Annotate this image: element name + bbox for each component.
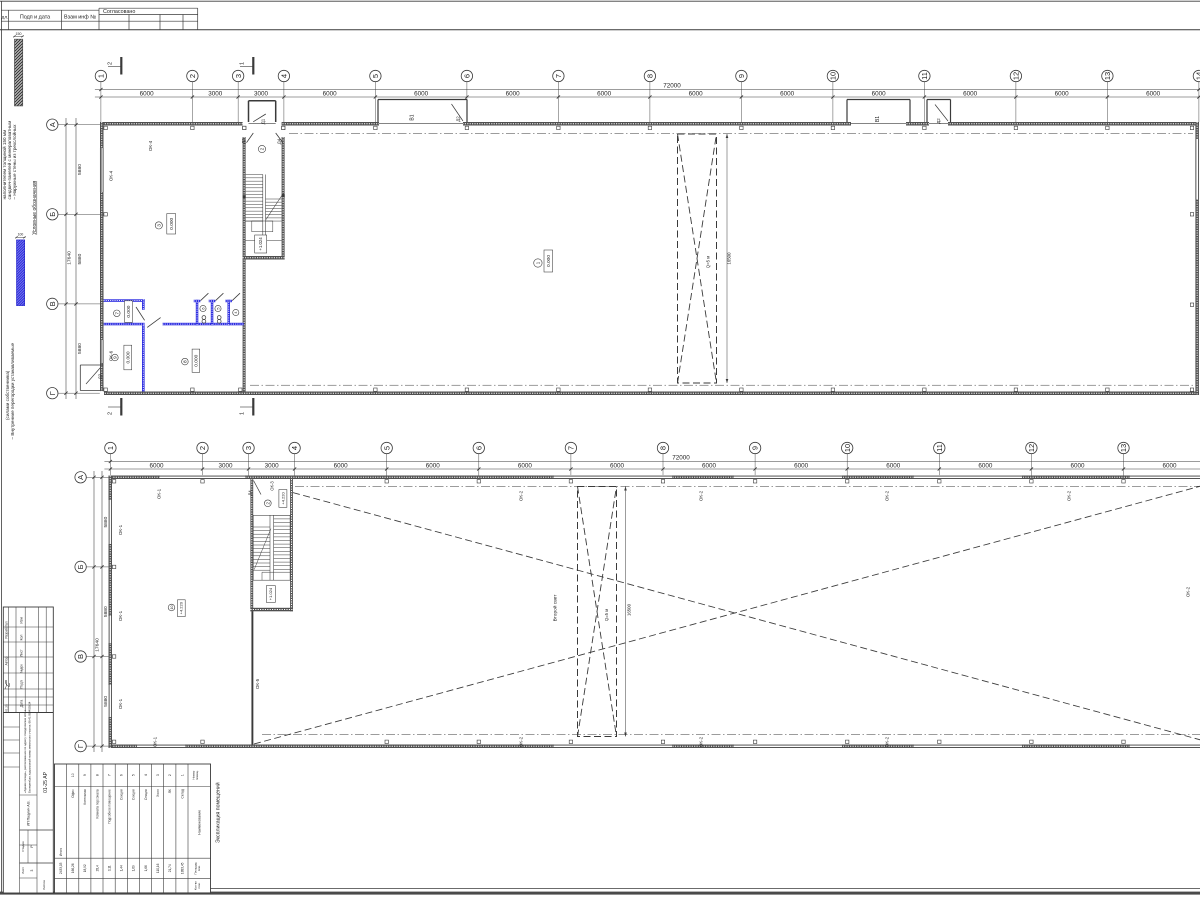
svg-text:сандвич-панелей с минераловатн: сандвич-панелей с минераловатным <box>6 121 12 200</box>
svg-text:№док: №док <box>19 664 23 673</box>
svg-text:10: 10 <box>170 606 174 610</box>
svg-text:4: 4 <box>234 311 238 313</box>
svg-text:6000: 6000 <box>1055 90 1070 97</box>
svg-text:6000: 6000 <box>702 462 717 469</box>
svg-text:ОК-4: ОК-4 <box>148 140 153 151</box>
svg-text:Листов: Листов <box>42 880 46 890</box>
svg-text:10: 10 <box>71 773 75 777</box>
svg-text:Экспликация помещений: Экспликация помещений <box>215 782 222 843</box>
svg-text:6000: 6000 <box>1070 462 1085 469</box>
svg-text:ОК-2: ОК-2 <box>519 490 524 501</box>
svg-text:12: 12 <box>1012 72 1021 80</box>
svg-text:Д3: Д3 <box>241 138 246 144</box>
svg-text:Автор: Автор <box>5 656 9 665</box>
svg-text:8: 8 <box>646 74 655 78</box>
svg-text:наполнителем толщиной 150 мм: наполнителем толщиной 150 мм <box>1 130 7 200</box>
svg-text:ОК-1: ОК-1 <box>118 524 123 535</box>
svg-text:16500: 16500 <box>727 252 732 265</box>
svg-text:Согласовано: Согласовано <box>103 9 135 15</box>
svg-text:9: 9 <box>83 774 87 776</box>
svg-text:Стадия: Стадия <box>21 841 25 852</box>
svg-text:0.000: 0.000 <box>169 217 175 229</box>
svg-text:9: 9 <box>751 446 760 450</box>
svg-text:6000: 6000 <box>414 90 429 97</box>
svg-text:01.25: 01.25 <box>5 704 9 712</box>
svg-text:3000: 3000 <box>219 462 234 469</box>
svg-text:Q=5 м: Q=5 м <box>706 256 711 268</box>
svg-text:6000: 6000 <box>426 462 441 469</box>
svg-text:ОК-2: ОК-2 <box>1186 586 1191 597</box>
svg-text:100: 100 <box>18 232 24 236</box>
svg-text:4: 4 <box>290 446 299 450</box>
svg-text:1: 1 <box>180 774 184 776</box>
svg-text:7: 7 <box>108 774 112 776</box>
svg-text:2: 2 <box>260 147 266 150</box>
svg-text:0.000: 0.000 <box>126 305 132 317</box>
svg-text:5: 5 <box>132 774 136 776</box>
svg-text:13: 13 <box>1103 72 1112 80</box>
svg-text:3: 3 <box>30 869 34 871</box>
svg-text:Секция: Секция <box>132 789 136 800</box>
svg-text:7: 7 <box>554 74 563 78</box>
svg-text:11: 11 <box>920 72 929 80</box>
svg-text:ОК-6: ОК-6 <box>109 350 114 361</box>
svg-text:6000: 6000 <box>886 462 901 469</box>
svg-text:18,92: 18,92 <box>83 864 87 872</box>
svg-text:ОК-2: ОК-2 <box>1067 490 1072 501</box>
svg-text:Комната персонала: Комната персонала <box>95 789 99 818</box>
svg-text:(силами собственника): (силами собственника) <box>5 370 10 420</box>
svg-text:5880: 5880 <box>103 696 109 707</box>
svg-text:3: 3 <box>156 224 162 227</box>
svg-text:0.000: 0.000 <box>194 354 200 366</box>
svg-text:5880: 5880 <box>77 343 83 354</box>
svg-text:ОК-2: ОК-2 <box>885 490 890 501</box>
svg-text:ЛК: ЛК <box>168 789 172 793</box>
svg-text:3000: 3000 <box>208 90 223 97</box>
svg-text:5: 5 <box>382 446 391 450</box>
svg-text:1,66: 1,66 <box>144 865 148 871</box>
svg-text:ОК-3: ОК-3 <box>270 481 275 491</box>
svg-text:6000: 6000 <box>1163 462 1178 469</box>
svg-text:5880: 5880 <box>77 164 83 175</box>
svg-text:6000: 6000 <box>323 90 338 97</box>
svg-text:6000: 6000 <box>1146 90 1161 97</box>
svg-text:Д2: Д2 <box>456 116 461 122</box>
svg-text:2433,03: 2433,03 <box>59 862 63 874</box>
svg-text:Q=5 м: Q=5 м <box>604 609 609 621</box>
svg-text:1: 1 <box>106 446 115 450</box>
svg-text:Г: Г <box>76 744 85 748</box>
svg-text:6000: 6000 <box>794 462 809 469</box>
svg-text:В: В <box>48 301 57 306</box>
svg-text:ОК-2: ОК-2 <box>699 490 704 501</box>
svg-text:5: 5 <box>371 74 380 78</box>
svg-text:Подп и дата: Подп и дата <box>20 15 50 21</box>
svg-text:9: 9 <box>737 74 746 78</box>
svg-text:3: 3 <box>244 446 253 450</box>
svg-text:6000: 6000 <box>597 90 612 97</box>
svg-text:В: В <box>76 654 85 659</box>
svg-text:Секция: Секция <box>144 789 148 800</box>
svg-text:6000: 6000 <box>963 90 978 97</box>
svg-text:пом.: пом. <box>197 865 201 871</box>
svg-text:ОК-5: ОК-5 <box>255 678 260 689</box>
svg-text:2: 2 <box>108 62 114 65</box>
svg-text:Секция: Секция <box>120 789 124 800</box>
svg-text:Б: Б <box>76 564 85 569</box>
svg-text:6: 6 <box>201 307 205 309</box>
svg-text:6000: 6000 <box>689 90 704 97</box>
svg-text:Котельная: Котельная <box>83 789 87 805</box>
svg-text:В1: В1 <box>410 114 416 120</box>
svg-text:3,11: 3,11 <box>108 865 112 871</box>
svg-text:ОК-1: ОК-1 <box>118 698 123 709</box>
svg-text:Кол: Кол <box>19 635 23 641</box>
svg-text:150: 150 <box>16 32 22 36</box>
svg-text:2: 2 <box>108 412 114 415</box>
svg-text:+1.024: +1.024 <box>258 237 263 251</box>
svg-text:10: 10 <box>829 72 838 80</box>
svg-text:помещ.: помещ. <box>195 770 199 780</box>
svg-text:0.000: 0.000 <box>546 255 552 267</box>
svg-text:1,44: 1,44 <box>120 865 124 871</box>
svg-text:5880: 5880 <box>77 253 83 264</box>
svg-text:7: 7 <box>114 312 120 315</box>
svg-text:8: 8 <box>659 446 668 450</box>
svg-text:3: 3 <box>234 74 243 78</box>
svg-text:12: 12 <box>1027 444 1036 452</box>
svg-text:В1: В1 <box>875 116 881 122</box>
svg-text:1,69: 1,69 <box>132 865 136 871</box>
svg-text:6000: 6000 <box>506 90 521 97</box>
svg-text:1: 1 <box>240 62 246 65</box>
svg-text:6000: 6000 <box>334 462 349 469</box>
svg-text:Д2: Д2 <box>936 118 941 124</box>
svg-text:ОК-2: ОК-2 <box>885 736 890 747</box>
svg-text:6000: 6000 <box>872 90 887 97</box>
svg-text:Второй свет: Второй свет <box>552 594 559 622</box>
svg-text:Д4: Д4 <box>247 490 252 496</box>
svg-text:5880: 5880 <box>103 516 109 527</box>
svg-text:Екатеринбург, кадастровый номе: Екатеринбург, кадастровый номер земельно… <box>28 701 32 793</box>
svg-text:14: 14 <box>1195 72 1200 80</box>
svg-text:Разработал: Разработал <box>5 621 9 638</box>
svg-text:6000: 6000 <box>518 462 533 469</box>
svg-text:Д2: Д2 <box>98 373 103 379</box>
svg-text:Лист: Лист <box>19 649 23 657</box>
svg-text:3000: 3000 <box>254 90 269 97</box>
svg-text:Подп: Подп <box>19 680 23 688</box>
svg-text:ОК-1: ОК-1 <box>153 736 158 747</box>
svg-text:+4.220: +4.220 <box>179 601 184 614</box>
svg-text:11: 11 <box>935 444 944 452</box>
svg-text:01-25 АР: 01-25 АР <box>43 771 49 793</box>
svg-text:6000: 6000 <box>780 90 795 97</box>
svg-text:166,26: 166,26 <box>71 863 75 873</box>
svg-text:6: 6 <box>463 74 472 78</box>
svg-text:6000: 6000 <box>610 462 625 469</box>
svg-text:4: 4 <box>144 774 148 776</box>
svg-text:17640: 17640 <box>95 638 101 652</box>
svg-text:А: А <box>48 122 57 127</box>
svg-text:13: 13 <box>1119 444 1128 452</box>
svg-text:Д1: Д1 <box>261 118 266 124</box>
svg-text:ИП Пацукич А.В.: ИП Пацукич А.В. <box>27 800 31 826</box>
svg-text:28,4: 28,4 <box>95 865 99 871</box>
svg-text:17640: 17640 <box>67 251 73 265</box>
svg-text:Взам инф №: Взам инф № <box>64 15 96 21</box>
svg-text:ОК-4: ОК-4 <box>109 170 114 181</box>
svg-text:Склад: Склад <box>180 789 184 798</box>
svg-text:1: 1 <box>240 412 246 415</box>
svg-text:Д4: Д4 <box>277 138 282 144</box>
svg-text:Изм: Изм <box>19 617 23 624</box>
svg-text:7: 7 <box>567 446 576 450</box>
svg-text:72000: 72000 <box>663 82 681 89</box>
svg-text:1883,45: 1883,45 <box>180 862 184 874</box>
svg-text:3000: 3000 <box>265 462 280 469</box>
svg-text:ОК-1: ОК-1 <box>118 610 123 621</box>
svg-text:Лист: Лист <box>21 867 25 874</box>
svg-text:6000: 6000 <box>140 90 155 97</box>
svg-text:1: 1 <box>536 261 542 264</box>
svg-text:2: 2 <box>188 74 197 78</box>
svg-text:пом.: пом. <box>197 882 201 888</box>
svg-text:4: 4 <box>280 74 289 78</box>
svg-text:6000: 6000 <box>149 462 164 469</box>
svg-text:2: 2 <box>168 774 172 776</box>
svg-text:1: 1 <box>97 74 106 78</box>
svg-text:Наименование: Наименование <box>198 810 202 835</box>
svg-text:2: 2 <box>198 446 207 450</box>
svg-text:21,74: 21,74 <box>168 864 172 872</box>
svg-text:2: 2 <box>265 502 271 505</box>
svg-text:Холл: Холл <box>156 789 160 797</box>
svg-text:Подсобное помещение: Подсобное помещение <box>108 789 112 824</box>
svg-text:Дата: Дата <box>19 700 23 708</box>
svg-text:5: 5 <box>216 307 220 309</box>
svg-text:– Наружные стены из трехслойны: – Наружные стены из трехслойных <box>11 124 17 200</box>
svg-text:+1.024: +1.024 <box>268 587 273 600</box>
svg-text:10: 10 <box>843 444 852 452</box>
svg-text:ОК-2: ОК-2 <box>699 736 704 747</box>
svg-text:0.000: 0.000 <box>125 351 131 363</box>
svg-text:Итого: Итого <box>59 848 63 857</box>
svg-text:ОК-2: ОК-2 <box>519 736 524 747</box>
svg-text:110,16: 110,16 <box>156 863 160 873</box>
svg-text:6: 6 <box>474 446 483 450</box>
svg-text:«Здание склада», расположенное: «Здание склада», расположенное по адресу… <box>23 709 27 793</box>
svg-text:8: 8 <box>183 360 189 363</box>
svg-text:дл.: дл. <box>2 16 9 21</box>
svg-text:5880: 5880 <box>103 606 109 617</box>
svg-text:А: А <box>76 475 85 480</box>
svg-text:8: 8 <box>95 774 99 776</box>
svg-text:6000: 6000 <box>978 462 993 469</box>
svg-text:3: 3 <box>156 774 160 776</box>
svg-text:16500: 16500 <box>626 603 631 616</box>
svg-text:6: 6 <box>120 774 124 776</box>
svg-text:Г: Г <box>48 391 57 395</box>
svg-text:ОК-1: ОК-1 <box>157 488 162 499</box>
svg-text:Б: Б <box>48 212 57 217</box>
svg-text:Офис: Офис <box>71 789 75 798</box>
svg-text:– Внутренние перегородки устан: – Внутренние перегородки устанавливаемые <box>10 342 15 439</box>
svg-text:72000: 72000 <box>672 454 690 461</box>
svg-text:+4.220: +4.220 <box>280 492 285 505</box>
